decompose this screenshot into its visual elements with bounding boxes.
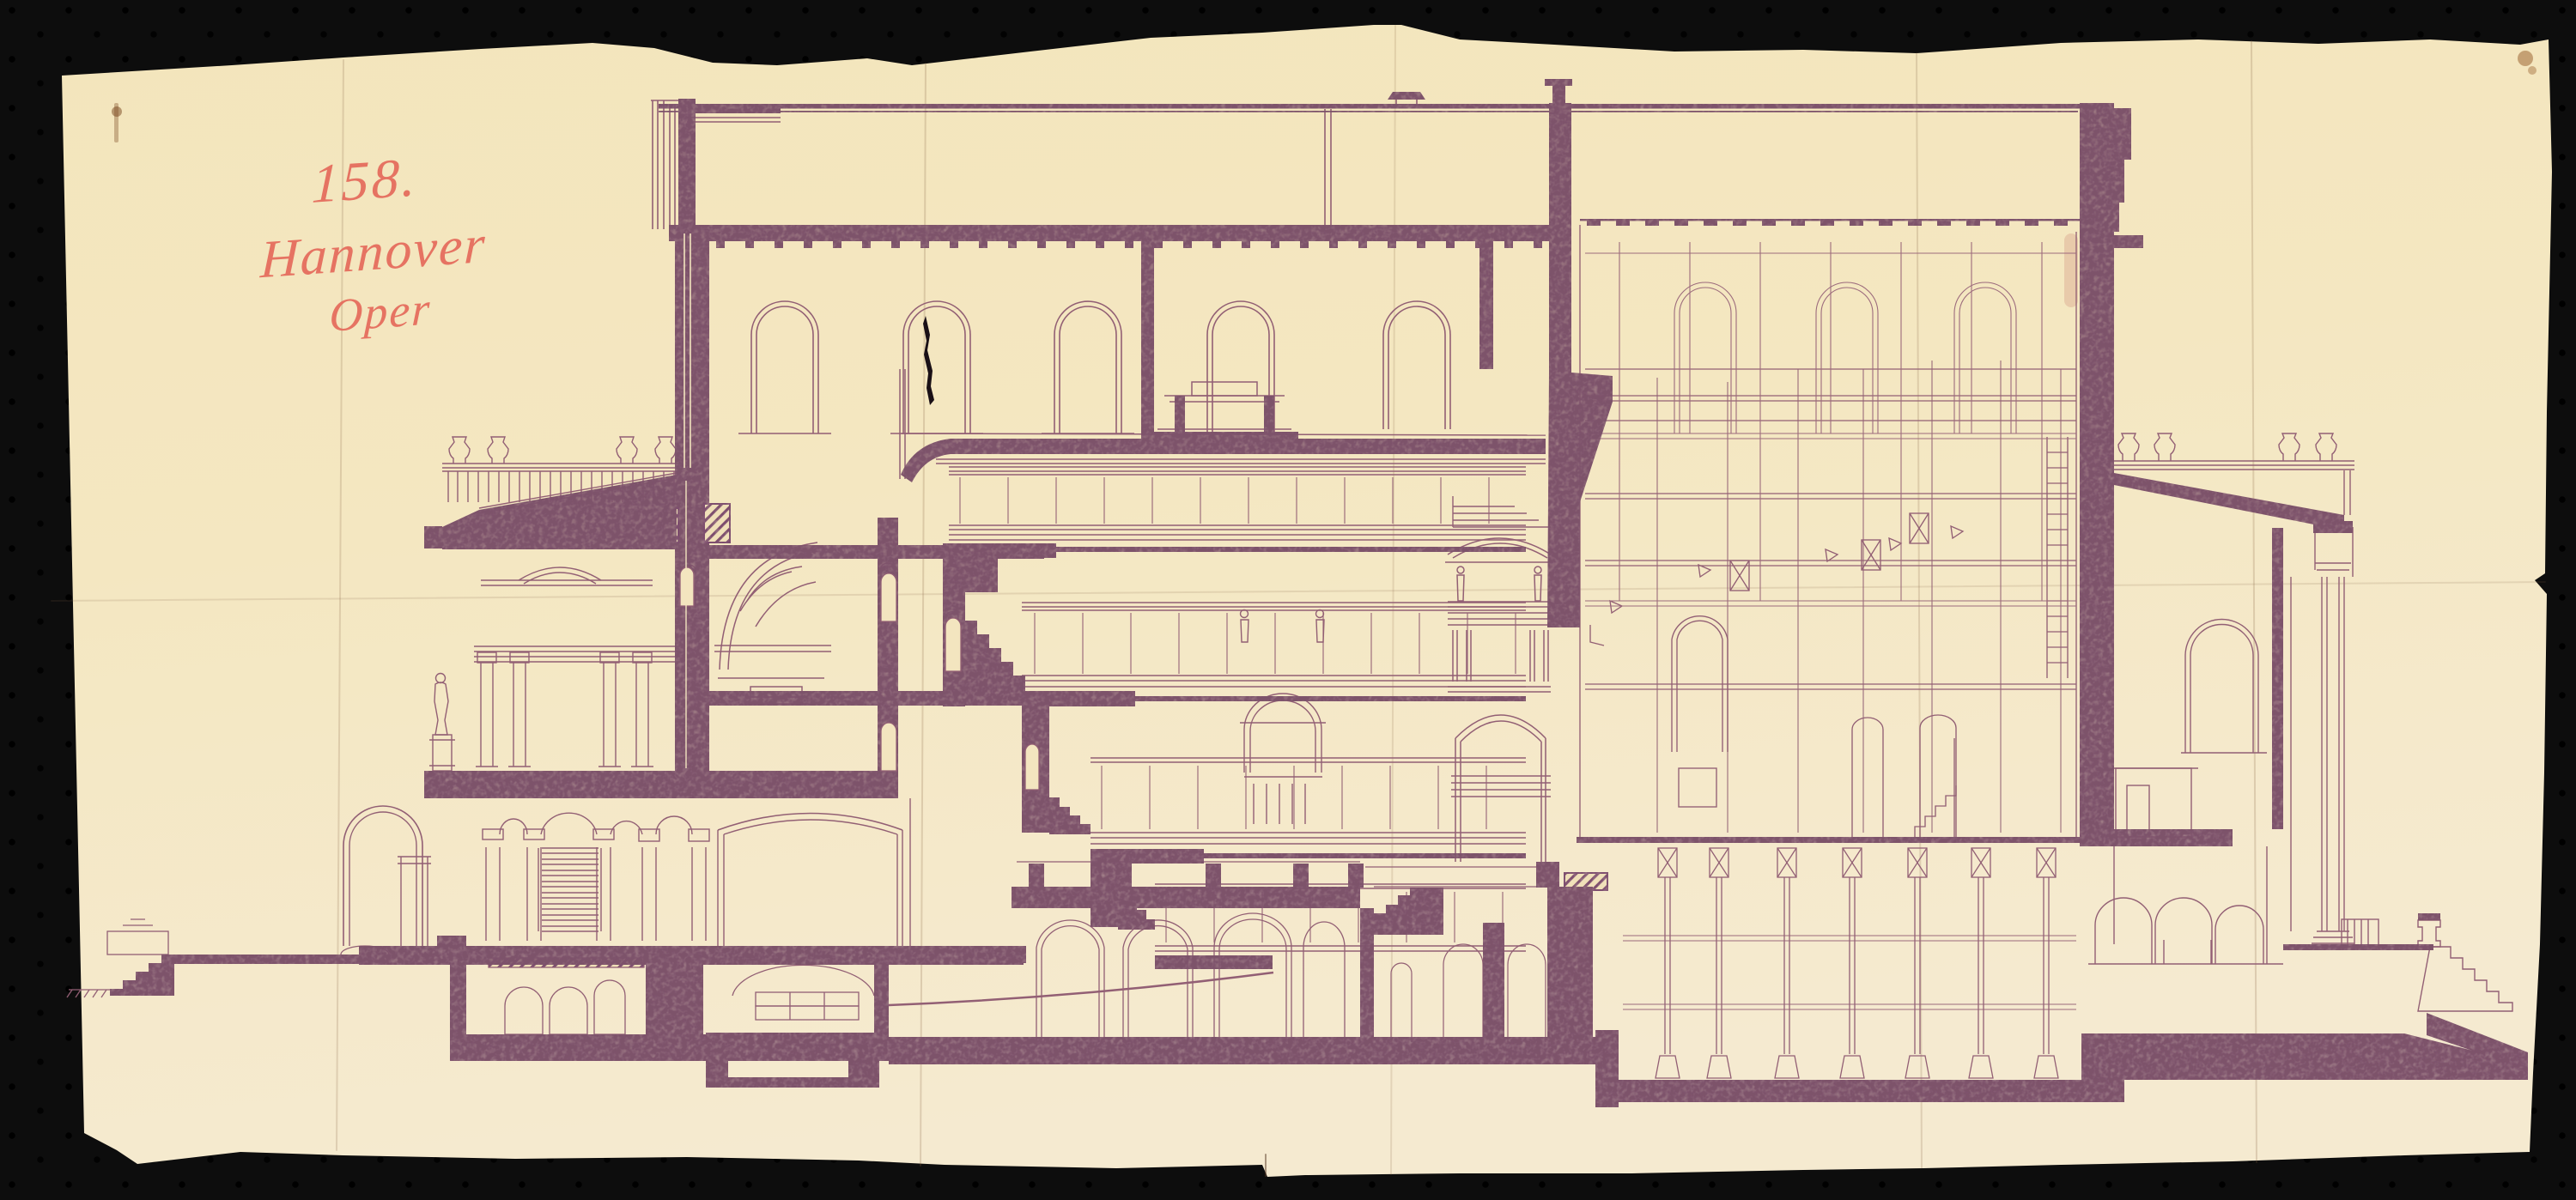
svg-text:158.: 158. (311, 146, 419, 215)
svg-text:Oper: Oper (329, 282, 433, 341)
